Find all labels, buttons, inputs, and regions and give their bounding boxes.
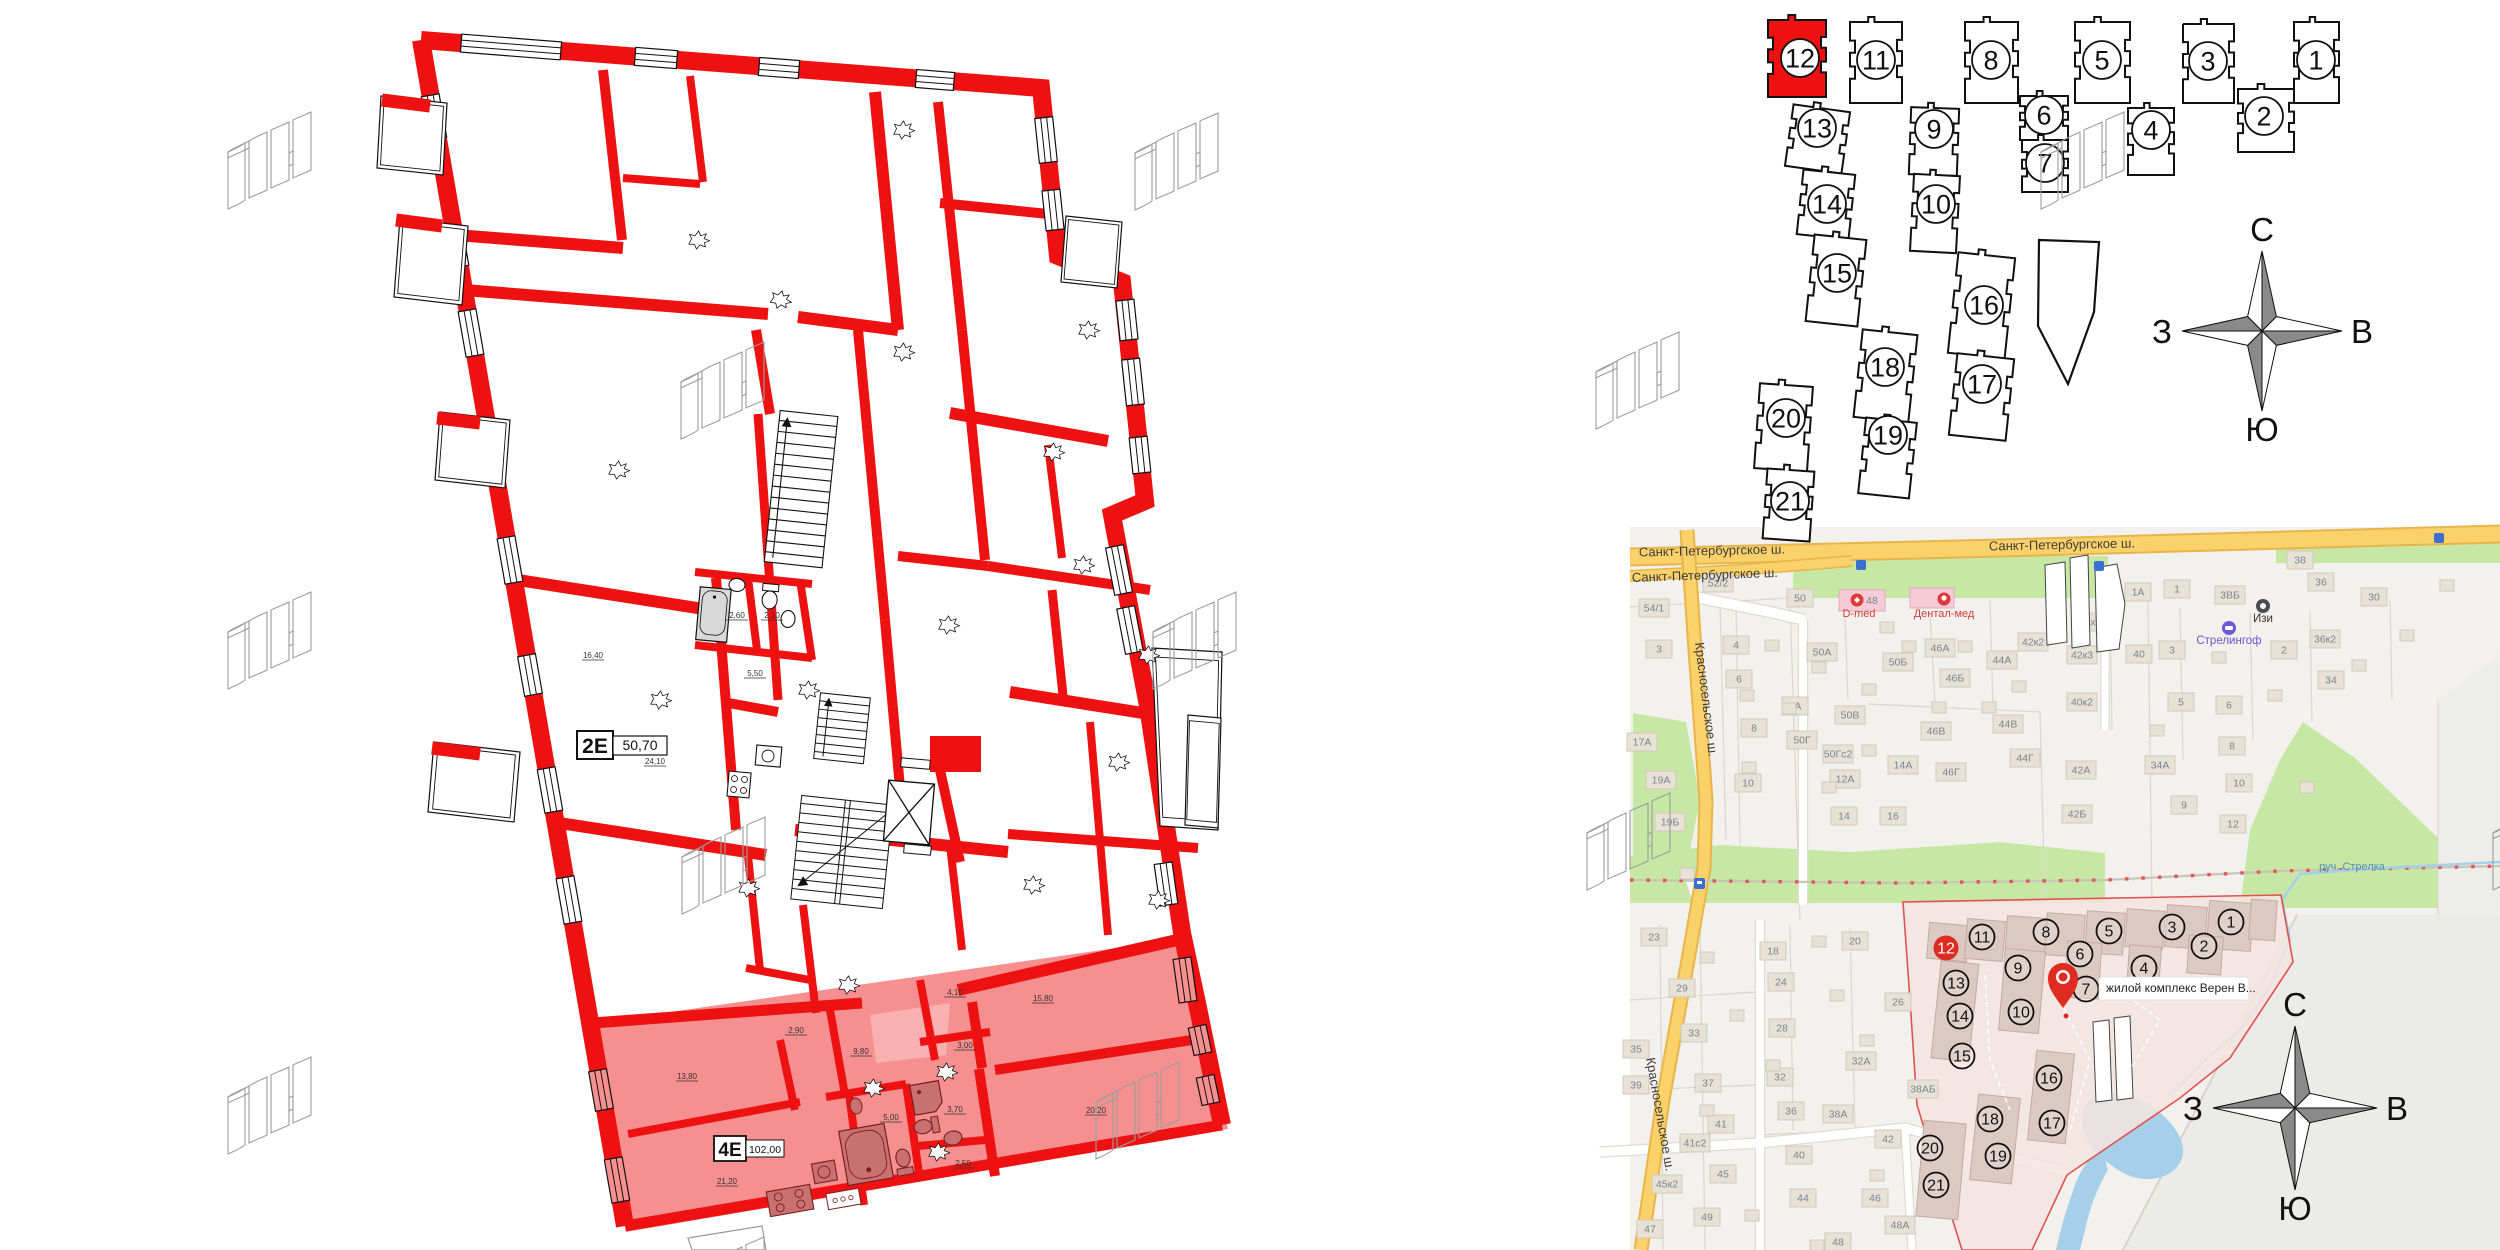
svg-text:30: 30 [2368,592,2380,604]
svg-text:12: 12 [2227,819,2239,831]
svg-text:4: 4 [1733,640,1739,652]
svg-text:Ю: Ю [2278,1190,2311,1227]
svg-text:4Е: 4Е [718,1140,741,1161]
svg-text:39: 39 [1630,1080,1642,1092]
svg-text:45к2: 45к2 [1656,1179,1678,1191]
svg-text:34А: 34А [2151,760,2170,772]
svg-text:2,10: 2,10 [764,611,780,620]
svg-text:10: 10 [2233,778,2245,790]
svg-text:8: 8 [2042,925,2051,942]
svg-text:18: 18 [1981,1112,1999,1129]
svg-text:3ВБ: 3ВБ [2220,590,2240,602]
svg-text:19: 19 [1989,1149,2007,1166]
svg-text:20: 20 [1921,1141,1939,1158]
svg-text:9: 9 [2014,961,2023,978]
svg-text:10: 10 [1742,778,1754,790]
svg-text:16: 16 [1887,811,1899,823]
svg-text:3: 3 [1656,644,1662,656]
svg-text:D-med: D-med [1842,608,1875,620]
svg-text:49: 49 [1701,1212,1713,1224]
svg-text:46Б: 46Б [1946,673,1965,685]
svg-text:5: 5 [2094,46,2109,76]
svg-text:Изи: Изи [2253,613,2273,625]
svg-text:6: 6 [2226,700,2232,712]
svg-text:Ю: Ю [2245,411,2278,448]
svg-text:46: 46 [1869,1193,1881,1205]
svg-text:5: 5 [2178,697,2184,709]
svg-text:38: 38 [2294,555,2306,567]
svg-text:42: 42 [1882,1134,1894,1146]
svg-text:48А: 48А [1891,1220,1910,1232]
svg-text:2: 2 [2200,939,2209,956]
svg-text:36: 36 [1785,1106,1797,1118]
svg-text:19А: 19А [1652,775,1671,787]
svg-text:36: 36 [2315,577,2327,589]
svg-text:44А: 44А [1993,655,2012,667]
svg-text:2Е: 2Е [582,735,608,758]
svg-text:8: 8 [1751,723,1757,735]
svg-text:16: 16 [2040,1071,2058,1088]
svg-text:6: 6 [2076,947,2085,964]
svg-text:5: 5 [2105,924,2114,941]
svg-text:37: 37 [1702,1078,1714,1090]
svg-text:4,10: 4,10 [947,988,963,997]
svg-text:3,00: 3,00 [957,1041,973,1050]
svg-text:11: 11 [1974,930,1991,947]
svg-text:14: 14 [1838,811,1850,823]
svg-text:З: З [2183,1090,2203,1127]
svg-text:24,10: 24,10 [645,757,666,766]
svg-text:16: 16 [1969,291,1999,321]
svg-text:40: 40 [1793,1150,1805,1162]
svg-text:41: 41 [1715,1119,1727,1131]
svg-text:50А: 50А [1813,647,1832,659]
svg-text:6: 6 [2036,101,2051,131]
svg-text:11: 11 [1862,46,1890,76]
svg-text:13,80: 13,80 [677,1072,698,1081]
svg-text:24: 24 [1775,977,1787,989]
svg-text:23: 23 [1648,932,1660,944]
svg-text:В: В [2386,1090,2408,1127]
svg-text:33: 33 [1688,1028,1700,1040]
svg-text:16,40: 16,40 [583,651,604,660]
svg-text:5,50: 5,50 [747,669,763,678]
svg-text:С: С [2283,986,2307,1023]
svg-text:Стрелингоф: Стрелингоф [2196,635,2261,647]
svg-text:1: 1 [2227,915,2236,932]
svg-text:50В: 50В [1841,710,1860,722]
svg-text:50: 50 [1794,593,1806,605]
svg-text:40: 40 [2133,649,2145,661]
svg-text:20: 20 [1771,404,1801,434]
svg-text:6: 6 [1736,674,1742,686]
svg-text:12: 12 [1937,941,1955,958]
svg-text:40к2: 40к2 [2071,697,2093,709]
svg-text:2,60: 2,60 [729,611,745,620]
svg-text:8: 8 [1983,46,1998,76]
svg-text:13: 13 [1802,114,1832,144]
svg-text:19: 19 [1873,421,1903,451]
svg-text:2,50: 2,50 [955,1159,971,1168]
svg-text:Дентал-мед: Дентал-мед [1914,608,1975,620]
svg-text:17А: 17А [1633,737,1652,749]
svg-text:48: 48 [1832,1237,1844,1249]
svg-text:44Г: 44Г [2016,753,2034,765]
svg-text:42Б: 42Б [2068,809,2087,821]
svg-text:2: 2 [2256,102,2271,132]
svg-text:102,00: 102,00 [749,1144,781,1156]
svg-text:3: 3 [2200,47,2215,77]
svg-text:50Г: 50Г [1793,735,1811,747]
svg-text:9: 9 [1926,115,1941,145]
svg-text:21: 21 [1775,487,1805,517]
svg-text:3: 3 [2169,645,2175,657]
svg-text:20: 20 [1849,936,1861,948]
svg-text:1: 1 [2174,584,2180,596]
svg-text:47: 47 [1644,1224,1656,1236]
svg-text:15: 15 [1822,259,1852,289]
svg-text:8: 8 [2229,741,2235,753]
svg-text:10: 10 [2012,1005,2030,1022]
svg-text:42к2: 42к2 [2022,637,2044,649]
svg-text:15,80: 15,80 [1033,994,1054,1003]
svg-text:42А: 42А [2072,765,2091,777]
svg-text:46А: 46А [1931,643,1950,655]
svg-text:Санкт-Петербургское ш.: Санкт-Петербургское ш. [1989,535,2135,553]
svg-text:7: 7 [2082,982,2091,999]
svg-text:28: 28 [1776,1023,1788,1035]
svg-text:42к3: 42к3 [2071,650,2093,662]
svg-text:Санкт-Петербургское ш.: Санкт-Петербургское ш. [1639,541,1785,559]
svg-text:13: 13 [1947,976,1965,993]
svg-text:З: З [2152,313,2172,350]
svg-text:В: В [2351,313,2373,350]
svg-text:2: 2 [2281,645,2287,657]
svg-text:54/1: 54/1 [1644,603,1665,615]
svg-text:32А: 32А [1852,1056,1871,1068]
svg-text:3: 3 [2168,920,2177,937]
svg-text:9: 9 [2181,800,2187,812]
svg-text:15: 15 [1953,1049,1971,1066]
svg-text:45: 45 [1717,1169,1729,1181]
svg-text:44В: 44В [1999,719,2018,731]
svg-text:4: 4 [2140,961,2149,978]
svg-text:50Б: 50Б [1889,657,1908,669]
svg-text:46В: 46В [1927,726,1946,738]
svg-text:12А: 12А [1836,774,1855,786]
svg-text:14А: 14А [1894,760,1913,772]
svg-text:9,80: 9,80 [853,1047,869,1056]
svg-text:46Г: 46Г [1942,767,1960,779]
svg-text:41с2: 41с2 [1684,1138,1707,1150]
svg-text:17: 17 [1967,370,1997,400]
svg-text:2,90: 2,90 [788,1026,804,1035]
svg-text:4: 4 [2143,116,2158,146]
svg-text:5,00: 5,00 [883,1113,899,1122]
svg-text:21,20: 21,20 [717,1177,738,1186]
svg-text:18: 18 [1767,946,1779,958]
svg-text:38АБ: 38АБ [1910,1084,1936,1096]
svg-text:32: 32 [1774,1072,1786,1084]
svg-text:14: 14 [1812,190,1842,220]
svg-text:50Гс2: 50Гс2 [1824,749,1853,761]
svg-text:18: 18 [1870,353,1900,383]
svg-text:44: 44 [1797,1193,1809,1205]
svg-text:жилой комплекс Верен В...: жилой комплекс Верен В... [2106,981,2256,995]
svg-text:26: 26 [1892,997,1904,1009]
svg-text:1А: 1А [2132,587,2145,599]
svg-text:48: 48 [1866,595,1878,607]
svg-text:руч. Стрелка: руч. Стрелка [2319,861,2386,873]
svg-text:12: 12 [1785,44,1815,74]
svg-text:17: 17 [2043,1116,2061,1133]
svg-text:10: 10 [1921,190,1951,220]
svg-text:1: 1 [2308,46,2323,76]
svg-text:38А: 38А [1829,1109,1848,1121]
svg-text:С: С [2250,211,2274,248]
svg-text:35: 35 [1630,1044,1642,1056]
svg-text:34: 34 [2325,675,2337,687]
svg-text:14: 14 [1951,1009,1969,1026]
svg-text:29: 29 [1676,983,1688,995]
svg-text:50,70: 50,70 [622,737,657,753]
svg-text:36к2: 36к2 [2314,634,2336,646]
svg-text:21: 21 [1927,1178,1945,1195]
svg-text:3,70: 3,70 [947,1105,963,1114]
